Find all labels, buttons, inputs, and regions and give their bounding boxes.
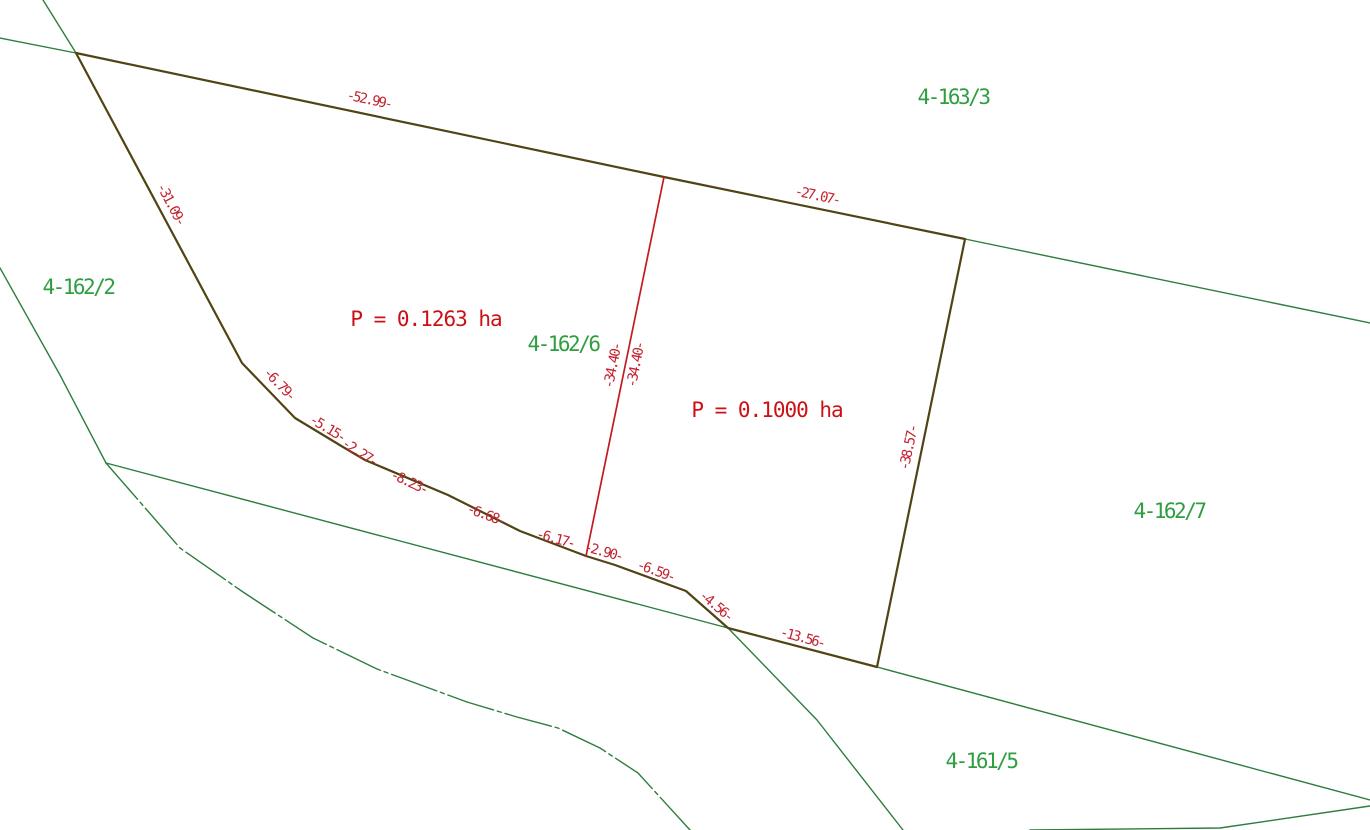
- dimension-label: -6.17-: [534, 526, 575, 551]
- dimension-label: -52.99-: [345, 88, 392, 113]
- boundary-line-south-steep: [728, 628, 903, 830]
- area-label-east-parcel: P = 0.1000 ha: [691, 398, 842, 422]
- dimension-label: -6.79-: [260, 365, 298, 404]
- boundary-line-southeast: [877, 667, 1370, 800]
- boundary-line-bottom-right: [1030, 806, 1370, 830]
- parcel-label-4-162-6: 4-162/6: [527, 332, 600, 356]
- surveyed-parcel-outline: [76, 53, 965, 667]
- dimension-label: -34.40-: [624, 342, 648, 389]
- dimension-label: -5.15-: [306, 412, 347, 446]
- cadastral-canvas: -52.99- -27.07- -31.09- -6.79- -5.15- -2…: [0, 0, 1370, 830]
- parcel-label-4-161-5: 4-161/5: [945, 749, 1017, 773]
- dimension-label: -6.59-: [635, 557, 677, 585]
- boundary-line-top-left-b: [0, 38, 76, 53]
- boundary-line-southwest-curve: [106, 463, 690, 830]
- parcel-division-line: [586, 177, 664, 556]
- parcel-label-4-163-3: 4-163/3: [917, 85, 990, 109]
- area-label-west-parcel: P = 0.1263 ha: [350, 307, 501, 331]
- dimension-label: -6.68-: [465, 501, 507, 529]
- boundary-line-east: [965, 239, 1370, 323]
- dimension-label: -2.27-: [339, 435, 380, 469]
- parcel-label-4-162-7: 4-162/7: [1133, 499, 1206, 523]
- boundary-line-top-left-a: [43, 0, 76, 53]
- parcel-label-4-162-2: 4-162/2: [42, 275, 114, 299]
- dimension-label: -8.23-: [388, 467, 430, 498]
- cadastral-map: -52.99- -27.07- -31.09- -6.79- -5.15- -2…: [0, 0, 1370, 830]
- dimension-label: -31.09-: [153, 180, 188, 227]
